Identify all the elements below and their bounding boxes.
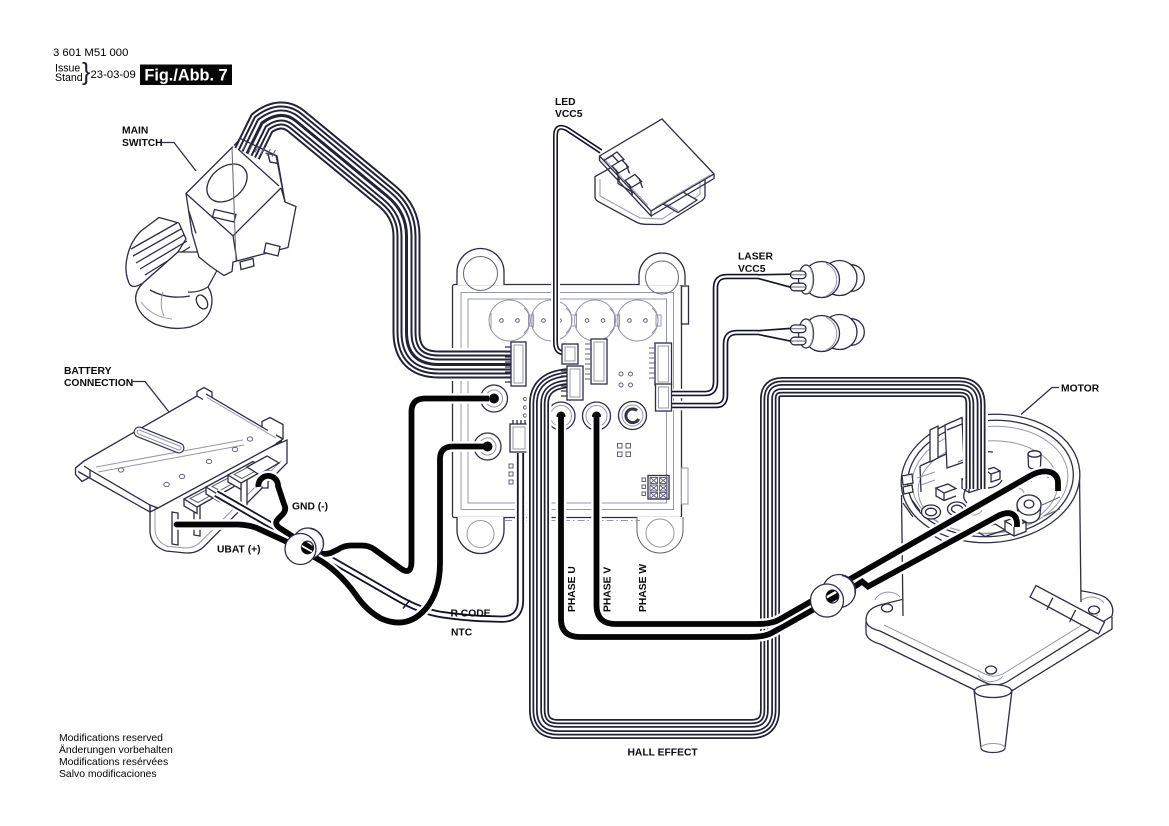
svg-text:23-03-09: 23-03-09	[91, 69, 136, 81]
svg-text:R CODE: R CODE	[451, 609, 491, 620]
svg-text:HALL EFFECT: HALL EFFECT	[628, 748, 699, 759]
svg-text:LED: LED	[555, 97, 576, 108]
svg-text:VCC5: VCC5	[555, 109, 583, 120]
svg-text:MOTOR: MOTOR	[1061, 384, 1100, 395]
svg-text:3 601 M51 000: 3 601 M51 000	[53, 47, 128, 59]
svg-text:LASER: LASER	[738, 252, 773, 263]
svg-text:CONNECTION: CONNECTION	[64, 378, 133, 389]
svg-text:Modifications resérvées: Modifications resérvées	[59, 757, 168, 768]
svg-text:Modifications reserved: Modifications reserved	[59, 733, 163, 744]
svg-text:Salvo modificaciones: Salvo modificaciones	[59, 769, 157, 780]
svg-text:Fig./Abb. 7: Fig./Abb. 7	[144, 67, 227, 85]
svg-text:BATTERY: BATTERY	[64, 366, 112, 377]
svg-text:UBAT (+): UBAT (+)	[217, 545, 261, 556]
svg-text:SWITCH: SWITCH	[122, 138, 163, 149]
svg-text:Änderungen vorbehalten: Änderungen vorbehalten	[59, 744, 173, 756]
svg-text:NTC: NTC	[451, 628, 473, 639]
svg-text:Stand: Stand	[55, 72, 83, 84]
svg-text:}: }	[82, 58, 90, 86]
svg-text:PHASE W: PHASE W	[638, 564, 649, 612]
svg-text:MAIN: MAIN	[122, 126, 148, 137]
svg-text:PHASE U: PHASE U	[567, 566, 578, 612]
svg-text:PHASE V: PHASE V	[603, 567, 614, 612]
svg-text:GND (-): GND (-)	[292, 502, 328, 513]
